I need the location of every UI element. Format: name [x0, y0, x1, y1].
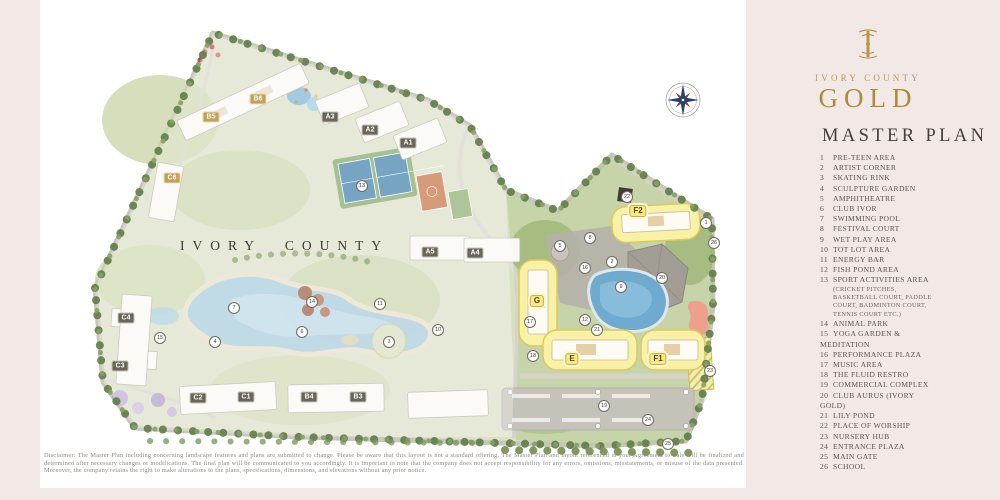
site-plan-area: IVORY COUNTY B5B6A3A2A1A5A4C6C4C3C2C1B4B…: [0, 0, 760, 500]
site-plan-illustration: [0, 0, 760, 500]
legend-item: 1PRE-TEEN AREA: [820, 153, 995, 163]
legend-item: 10TOT LOT AREA: [820, 245, 995, 255]
legend-item: 21LILY POND: [820, 411, 995, 421]
legend-item: 26SCHOOL: [820, 462, 995, 472]
legend-panel: IVORY COUNTY GOLD MASTER PLAN 1PRE-TEEN …: [745, 0, 995, 500]
brand-name: IVORY COUNTY: [783, 73, 953, 83]
legend-item: 11ENERGY BAR: [820, 255, 995, 265]
legend-item: 16PERFORMANCE PLAZA: [820, 350, 995, 360]
legend-item: 13SPORT ACTIVITIES AREA(CRICKET PITCHES,…: [820, 275, 995, 319]
legend-item: 6CLUB IVOR: [820, 204, 995, 214]
legend-item: 15YOGA GARDEN &MEDITATION: [820, 329, 995, 349]
legend-item: 14ANIMAL PARK: [820, 319, 995, 329]
brand-gold-word: GOLD: [783, 84, 953, 112]
legend-item: 23NURSERY HUB: [820, 432, 995, 442]
brand-logo: IVORY COUNTY GOLD: [783, 26, 953, 112]
monogram-icon: [851, 26, 885, 62]
legend-item: 12FISH POND AREA: [820, 265, 995, 275]
legend-item: 25MAIN GATE: [820, 452, 995, 462]
legend-item: 22PLACE OF WORSHIP: [820, 421, 995, 431]
legend-item: 7SWIMMING POOL: [820, 214, 995, 224]
legend-item: 4SCULPTURE GARDEN: [820, 184, 995, 194]
legend-item: 9WET PLAY AREA: [820, 235, 995, 245]
legend-list: 1PRE-TEEN AREA2ARTIST CORNER3SKATING RIN…: [820, 153, 995, 472]
page-title: MASTER PLAN: [822, 125, 995, 147]
legend-item: 20CLUB AURUS (IVORYGOLD): [820, 391, 995, 411]
legend-item: 2ARTIST CORNER: [820, 163, 995, 173]
legend-item: 17MUSIC AREA: [820, 360, 995, 370]
legend-item: 3SKATING RINK: [820, 173, 995, 183]
legend-item: 19COMMERCIAL COMPLEX: [820, 380, 995, 390]
legend-item: 5AMPHITHEATRE: [820, 194, 995, 204]
compass-rose: [666, 83, 700, 117]
master-plan-brochure: { "logo": { "brand": "IVORY COUNTY", "go…: [0, 0, 1000, 500]
legend-item: 18THE FLUID RESTRO: [820, 370, 995, 380]
legend-item: 8FESTIVAL COURT: [820, 224, 995, 234]
disclaimer-text: Disclaimer: The Master Plan including co…: [44, 452, 744, 475]
legend-item: 24ENTRANCE PLAZA: [820, 442, 995, 452]
